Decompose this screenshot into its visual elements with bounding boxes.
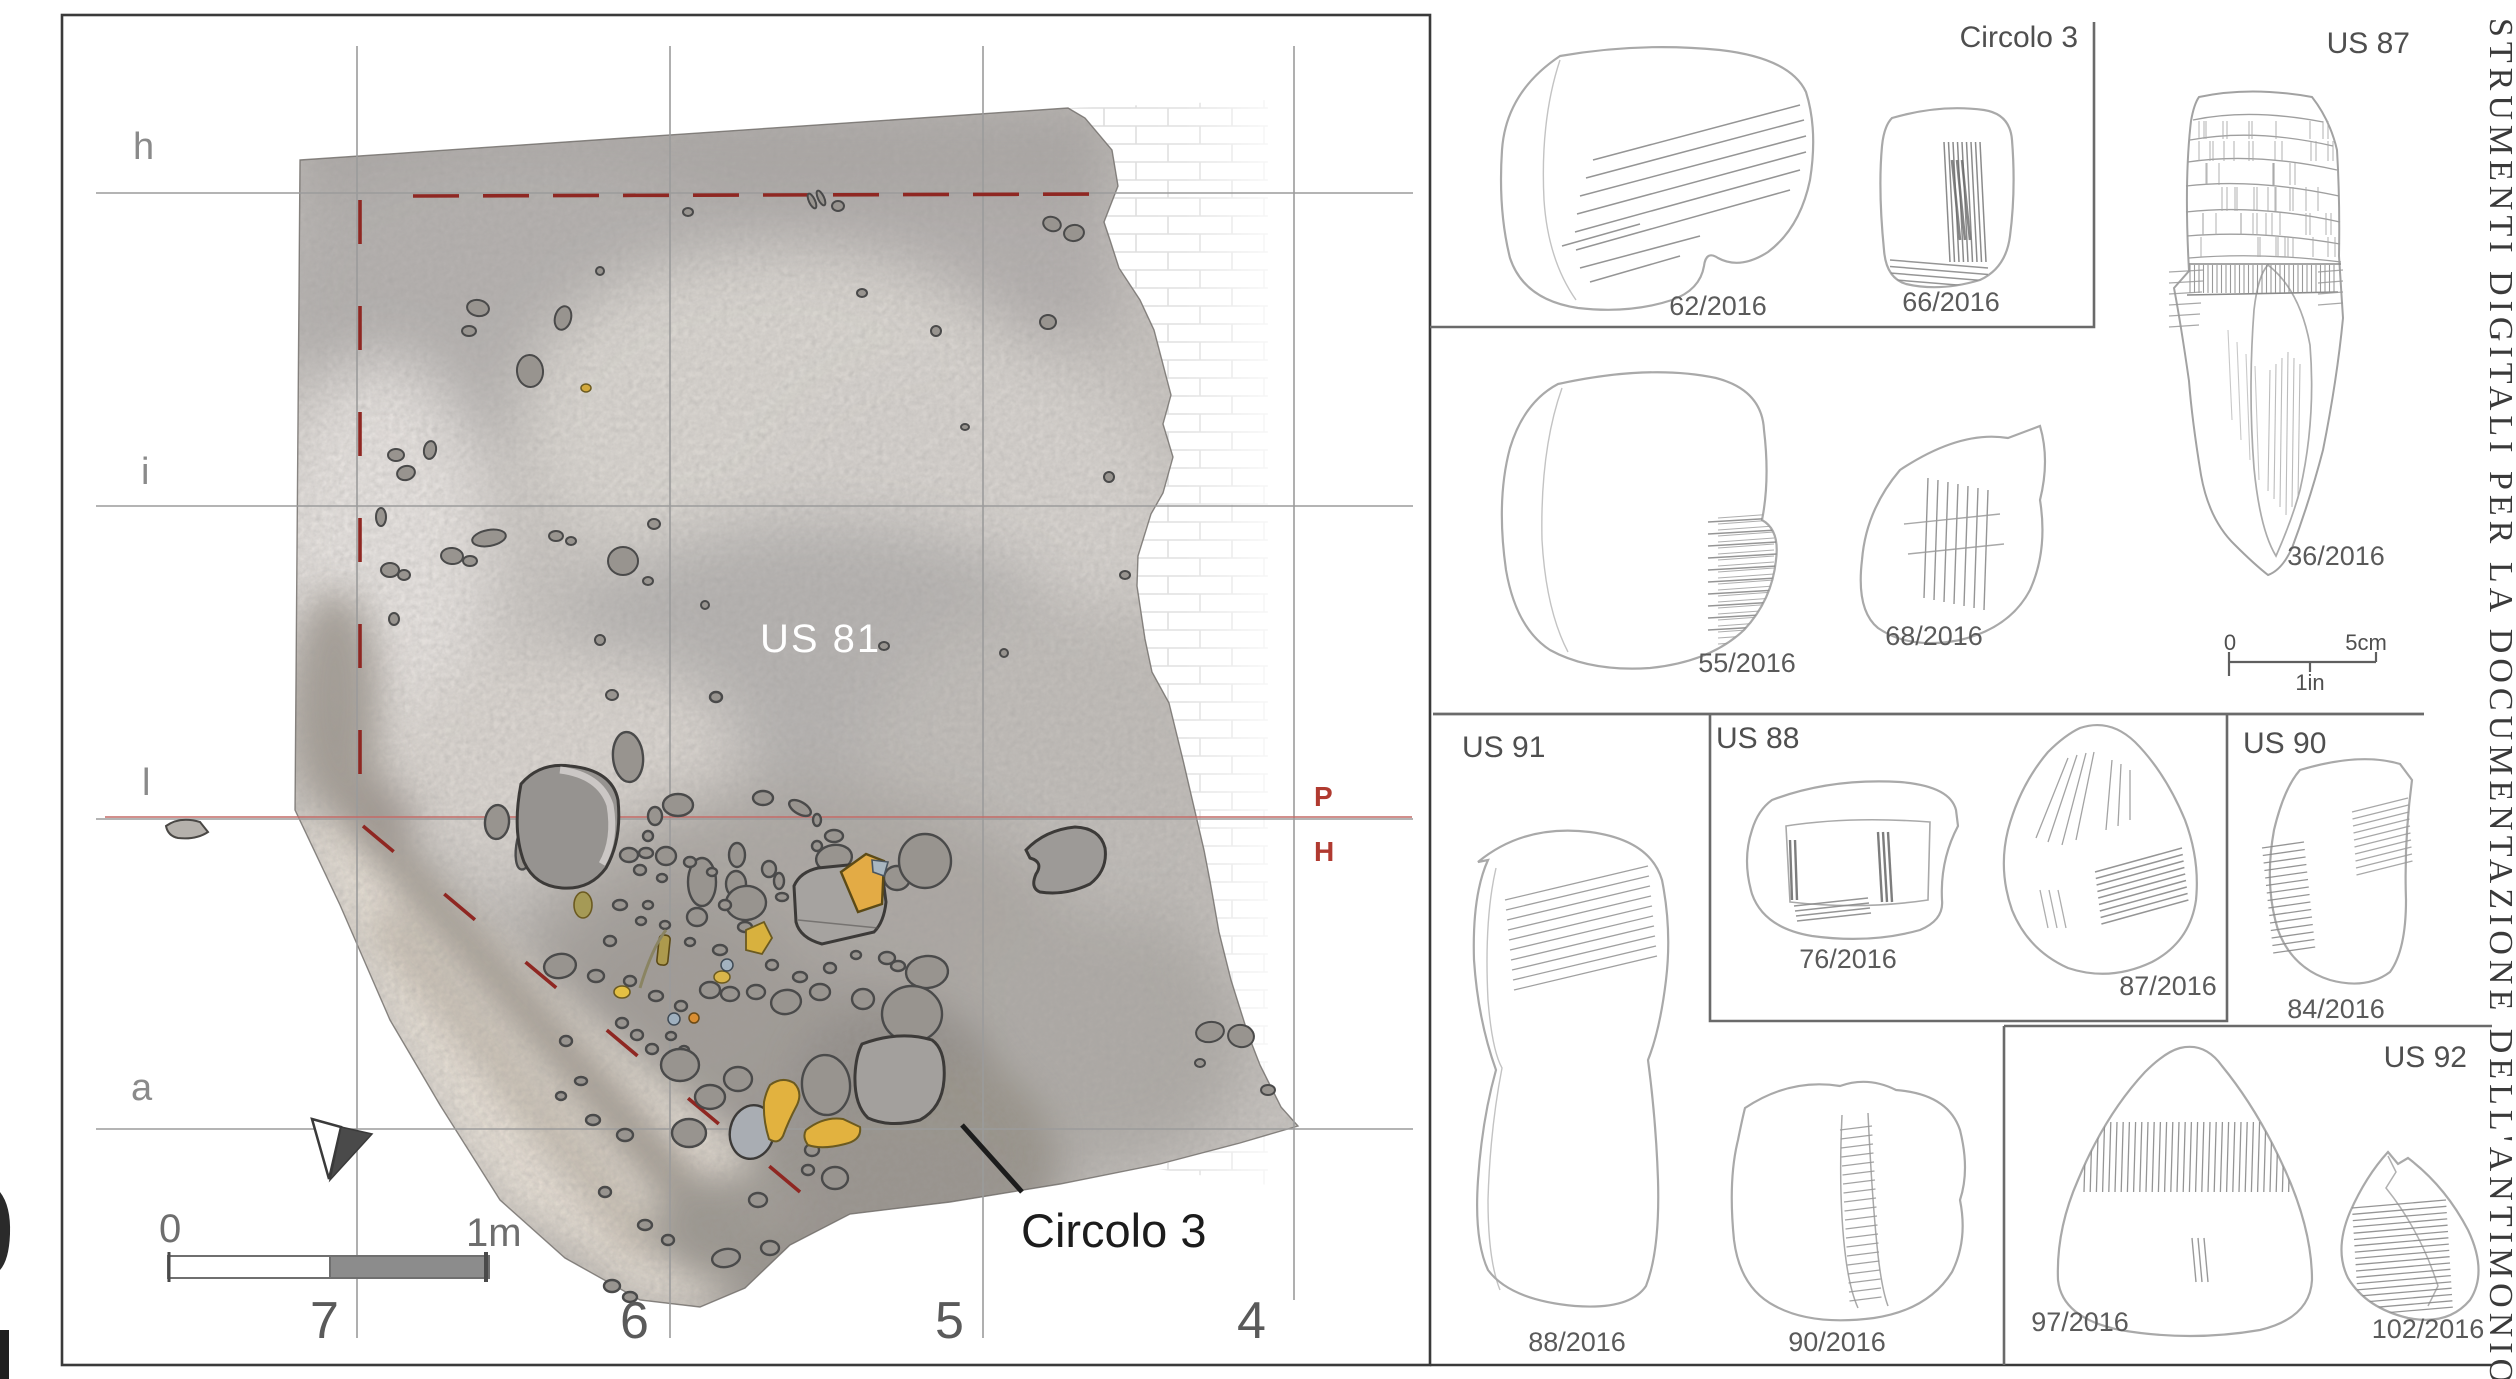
svg-text:90/2016: 90/2016 xyxy=(1788,1327,1886,1357)
svg-text:US 88: US 88 xyxy=(1716,722,1799,755)
svg-text:97/2016: 97/2016 xyxy=(2031,1307,2129,1337)
svg-text:62/2016: 62/2016 xyxy=(1669,291,1767,321)
svg-text:STRUMENTI DIGITALI PER LA DOCU: STRUMENTI DIGITALI PER LA DOCUMENTAZIONE… xyxy=(2482,18,2516,1379)
svg-text:1in: 1in xyxy=(2295,670,2324,695)
svg-text:88/2016: 88/2016 xyxy=(1528,1327,1626,1357)
svg-text:US 90: US 90 xyxy=(2243,727,2326,760)
svg-text:i: i xyxy=(141,451,149,493)
svg-text:Circolo 3: Circolo 3 xyxy=(1021,1204,1206,1257)
svg-text:US 87: US 87 xyxy=(2327,27,2410,60)
svg-text:l: l xyxy=(142,762,150,804)
svg-text:a: a xyxy=(131,1067,153,1109)
svg-text:102/2016: 102/2016 xyxy=(2372,1314,2485,1344)
svg-text:Circolo 3: Circolo 3 xyxy=(1960,21,2078,54)
svg-text:US 91: US 91 xyxy=(1462,731,1545,764)
svg-text:7: 7 xyxy=(310,1292,339,1350)
svg-text:5cm: 5cm xyxy=(2345,630,2387,655)
svg-text:1m: 1m xyxy=(466,1211,522,1255)
svg-text:H: H xyxy=(1314,836,1334,867)
svg-text:66/2016: 66/2016 xyxy=(1902,287,2000,317)
svg-text:0: 0 xyxy=(159,1207,181,1251)
svg-text:0: 0 xyxy=(2224,630,2236,655)
svg-text:h: h xyxy=(133,126,154,168)
svg-text:US 92: US 92 xyxy=(2384,1041,2467,1074)
svg-text:6: 6 xyxy=(620,1292,649,1350)
svg-text:87/2016: 87/2016 xyxy=(2119,971,2217,1001)
svg-text:36/2016: 36/2016 xyxy=(2287,541,2385,571)
svg-text:5: 5 xyxy=(935,1292,964,1350)
svg-text:76/2016: 76/2016 xyxy=(1799,944,1897,974)
svg-text:68/2016: 68/2016 xyxy=(1885,621,1983,651)
svg-text:55/2016: 55/2016 xyxy=(1698,648,1796,678)
svg-text:US 81: US 81 xyxy=(760,617,881,661)
svg-text:P: P xyxy=(1314,781,1333,812)
svg-text:84/2016: 84/2016 xyxy=(2287,994,2385,1024)
svg-text:4: 4 xyxy=(1237,1292,1266,1350)
